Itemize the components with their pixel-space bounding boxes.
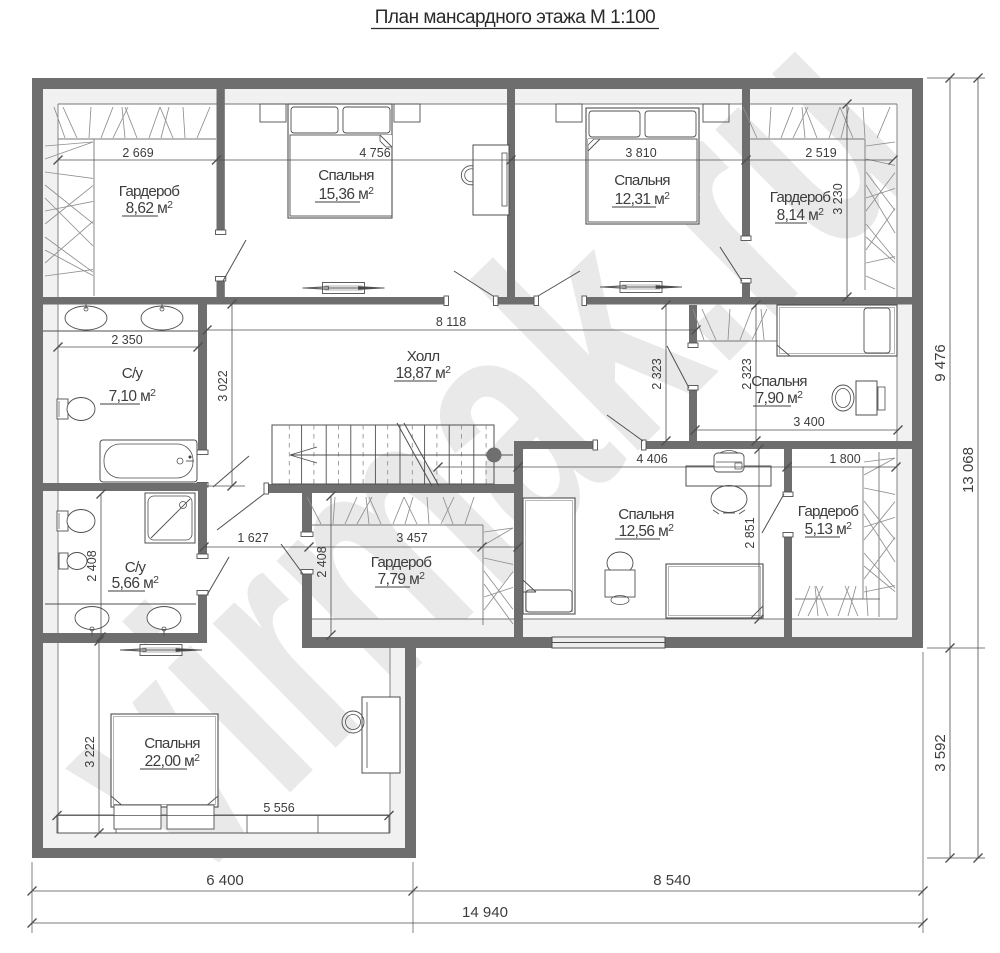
svg-text:22,00 м2: 22,00 м2 xyxy=(145,752,201,770)
svg-text:5,66 м2: 5,66 м2 xyxy=(112,574,160,592)
svg-text:5,13 м2: 5,13 м2 xyxy=(805,520,853,538)
svg-text:8 540: 8 540 xyxy=(653,872,691,889)
svg-text:8 118: 8 118 xyxy=(436,315,466,329)
svg-text:3 810: 3 810 xyxy=(625,146,656,160)
svg-text:Холл: Холл xyxy=(407,348,440,365)
svg-text:Спальня: Спальня xyxy=(614,172,670,189)
svg-text:3 022: 3 022 xyxy=(216,370,230,401)
svg-text:План мансардного этажа М 1:100: План мансардного этажа М 1:100 xyxy=(375,7,655,28)
svg-text:Гардероб: Гардероб xyxy=(371,554,433,571)
svg-text:1 627: 1 627 xyxy=(237,531,268,545)
svg-text:8,62 м2: 8,62 м2 xyxy=(126,199,174,217)
svg-text:Спальня: Спальня xyxy=(144,735,200,752)
svg-text:С/у: С/у xyxy=(122,365,144,382)
svg-text:12,56 м2: 12,56 м2 xyxy=(619,522,675,540)
svg-text:7,90 м2: 7,90 м2 xyxy=(756,389,804,407)
svg-text:4 406: 4 406 xyxy=(636,452,667,466)
svg-text:1 800: 1 800 xyxy=(829,452,860,466)
svg-text:Спальня: Спальня xyxy=(751,373,807,390)
svg-text:2 323: 2 323 xyxy=(650,358,664,389)
svg-text:2 519: 2 519 xyxy=(805,146,836,160)
svg-text:3 230: 3 230 xyxy=(831,183,845,214)
svg-text:Гардероб: Гардероб xyxy=(798,503,860,520)
svg-text:Гардероб: Гардероб xyxy=(770,189,832,206)
svg-text:6 400: 6 400 xyxy=(206,872,244,889)
svg-text:9 476: 9 476 xyxy=(932,344,949,382)
svg-text:2 408: 2 408 xyxy=(315,546,329,577)
svg-text:5 556: 5 556 xyxy=(263,801,294,815)
svg-text:14 940: 14 940 xyxy=(462,904,508,921)
svg-text:18,87 м2: 18,87 м2 xyxy=(396,364,452,382)
svg-text:С/у: С/у xyxy=(125,559,147,576)
svg-text:3 222: 3 222 xyxy=(83,736,97,767)
svg-text:2 408: 2 408 xyxy=(85,550,99,581)
svg-text:7,10 м2: 7,10 м2 xyxy=(109,387,157,405)
svg-text:7,79 м2: 7,79 м2 xyxy=(378,570,426,588)
svg-text:Гардероб: Гардероб xyxy=(119,183,181,200)
svg-text:13 068: 13 068 xyxy=(960,447,977,493)
svg-text:2 350: 2 350 xyxy=(111,333,142,347)
svg-text:4 756: 4 756 xyxy=(359,146,390,160)
svg-text:2 669: 2 669 xyxy=(122,146,153,160)
svg-text:3 457: 3 457 xyxy=(396,531,427,545)
svg-text:3 592: 3 592 xyxy=(932,734,949,772)
svg-text:15,36 м2: 15,36 м2 xyxy=(319,185,375,203)
svg-text:2 851: 2 851 xyxy=(743,517,757,548)
svg-text:Спальня: Спальня xyxy=(618,506,674,523)
svg-text:8,14 м2: 8,14 м2 xyxy=(777,206,825,224)
svg-text:12,31 м2: 12,31 м2 xyxy=(615,190,671,208)
svg-text:3 400: 3 400 xyxy=(793,415,824,429)
svg-text:Спальня: Спальня xyxy=(318,167,374,184)
